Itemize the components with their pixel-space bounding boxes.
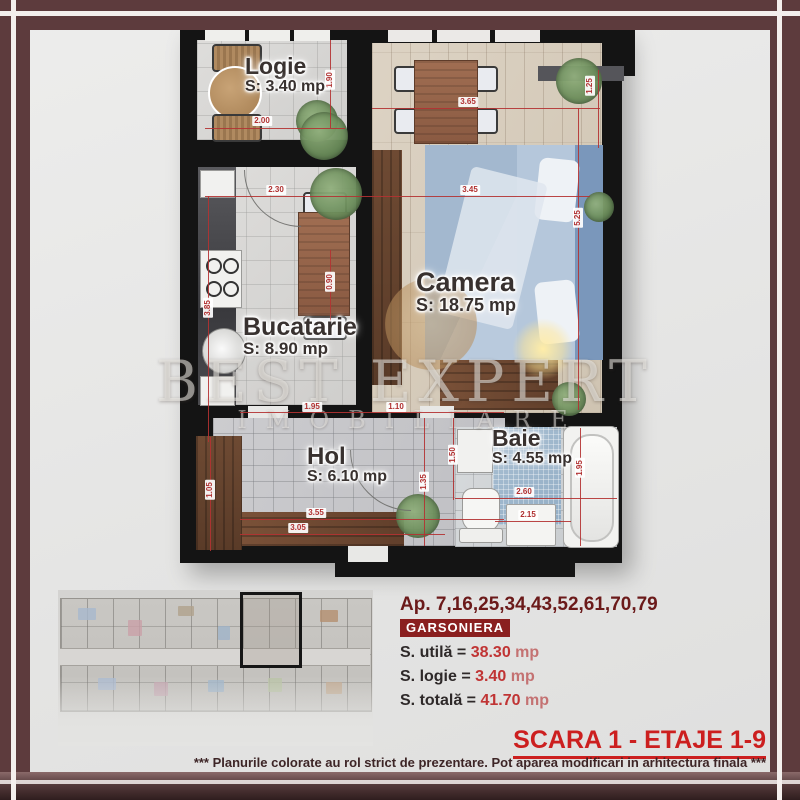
room-name: Hol [307, 443, 346, 470]
logie-window [205, 30, 330, 41]
dimension-line [598, 70, 599, 148]
miniplan-furniture [128, 620, 142, 636]
area-unit: mp [521, 692, 549, 709]
room-name: Bucatarie [243, 313, 357, 341]
area-unit: mp [506, 668, 534, 685]
miniplan-highlighted-unit [240, 592, 302, 668]
entry-door-gap [348, 546, 388, 562]
room-label-logie: LogieS: 3.40 mp [245, 54, 325, 96]
bed-headboard [575, 145, 603, 360]
area-unit: mp [511, 644, 539, 661]
dimension-label: 2.00 [252, 116, 272, 126]
area-row-utila: S. utilă = 38.30 mp [400, 644, 700, 662]
dimension-line [205, 196, 590, 197]
dimension-label: 3.85 [203, 298, 213, 318]
plant [300, 112, 348, 160]
frame-pinstripe-top [0, 11, 800, 16]
baie-shower-shelf [457, 429, 493, 473]
area-value: 38.30 [471, 644, 511, 661]
miniplan-fade [58, 676, 373, 746]
dimension-line [372, 108, 600, 109]
area-row-totala: S. totală = 41.70 mp [400, 692, 700, 710]
miniplan-furniture [218, 626, 230, 640]
dimension-line [208, 196, 209, 442]
info-panel: Ap. 7,16,25,34,43,52,61,70,79 GARSONIERA… [400, 594, 700, 710]
dimension-label: 1.25 [585, 76, 595, 96]
dimension-label: 1.90 [325, 70, 335, 90]
kitchen-sink-top [200, 170, 235, 198]
area-value: 41.70 [480, 692, 520, 709]
room-area: S: 3.40 mp [245, 79, 325, 96]
logie-window-mullion [245, 30, 249, 41]
area-value: 3.40 [475, 668, 506, 685]
room-area: S: 4.55 mp [492, 451, 572, 468]
dimension-label: 3.55 [306, 508, 326, 518]
dimension-label: 2.60 [514, 487, 534, 497]
dimension-line [580, 428, 581, 546]
room-name: Logie [245, 53, 306, 79]
dimension-line [455, 498, 617, 499]
dimension-label: 3.45 [460, 185, 480, 195]
room-label-bucatarie: BucatarieS: 8.90 mp [243, 314, 357, 358]
dimension-line [495, 521, 571, 522]
plant [310, 168, 362, 220]
dimension-line [240, 412, 504, 413]
room-label-hol: HolS: 6.10 mp [307, 444, 387, 486]
room-area: S: 8.90 mp [243, 340, 357, 358]
miniplan-furniture [178, 606, 194, 616]
apartment-numbers: Ap. 7,16,25,34,43,52,61,70,79 [400, 594, 700, 616]
dimension-label: 2.30 [266, 185, 286, 195]
frame-pinstripe-left [11, 0, 16, 800]
dimension-label: 3.05 [288, 523, 308, 533]
dimension-label: 1.95 [575, 458, 585, 478]
miniplan-corridor [60, 648, 370, 666]
flyer-root: { "watermark": { "line1": "BEST EXPERT",… [0, 0, 800, 800]
camera-window [388, 29, 540, 42]
frame-pinstripe-right [777, 0, 782, 800]
plant [556, 58, 602, 104]
frame-pinstripe-bottom [0, 780, 800, 784]
area-label: S. totală = [400, 692, 480, 709]
dimension-label: 5.25 [573, 208, 583, 228]
burner [223, 258, 239, 274]
area-row-logie: S. logie = 3.40 mp [400, 668, 700, 686]
toilet [462, 488, 500, 532]
kitchen-table [298, 212, 350, 316]
frame-right [770, 0, 800, 800]
logie-window-mullion [290, 30, 294, 41]
dimension-line [578, 108, 579, 410]
dimension-line [240, 534, 445, 535]
camera-window-mullion [432, 29, 437, 42]
dimension-label: 3.65 [458, 97, 478, 107]
miniplan-furniture [320, 610, 338, 622]
room-label-camera: CameraS: 18.75 mp [416, 268, 516, 315]
dimension-label: 1.10 [386, 402, 406, 412]
dimension-line [205, 128, 345, 129]
disclaimer-text: *** Planurile colorate au rol strict de … [194, 755, 766, 770]
room-name: Camera [416, 267, 515, 297]
bathtub-basin [570, 434, 614, 542]
camera-window-mullion [490, 29, 495, 42]
burner [223, 281, 239, 297]
dimension-label: 1.35 [419, 472, 429, 492]
miniplan-furniture [78, 608, 96, 620]
dimension-label: 0.90 [325, 272, 335, 292]
dimension-label: 2.15 [518, 510, 538, 520]
area-label: S. utilă = [400, 644, 471, 661]
room-label-baie: BaieS: 4.55 mp [492, 426, 572, 468]
hol-wardrobe [196, 436, 242, 550]
dimension-label: 1.95 [302, 402, 322, 412]
dimension-label: 1.50 [448, 445, 458, 465]
dimension-line [240, 519, 504, 520]
area-label: S. logie = [400, 668, 475, 685]
room-area: S: 6.10 mp [307, 469, 387, 486]
floor-overview-miniplan [58, 590, 373, 742]
toilet-tank [459, 528, 503, 543]
room-area: S: 18.75 mp [416, 296, 516, 315]
frame-bottom [0, 772, 800, 800]
room-name: Baie [492, 425, 541, 451]
apartment-type-badge: GARSONIERA [400, 619, 510, 637]
dimension-label: 1.05 [205, 480, 215, 500]
